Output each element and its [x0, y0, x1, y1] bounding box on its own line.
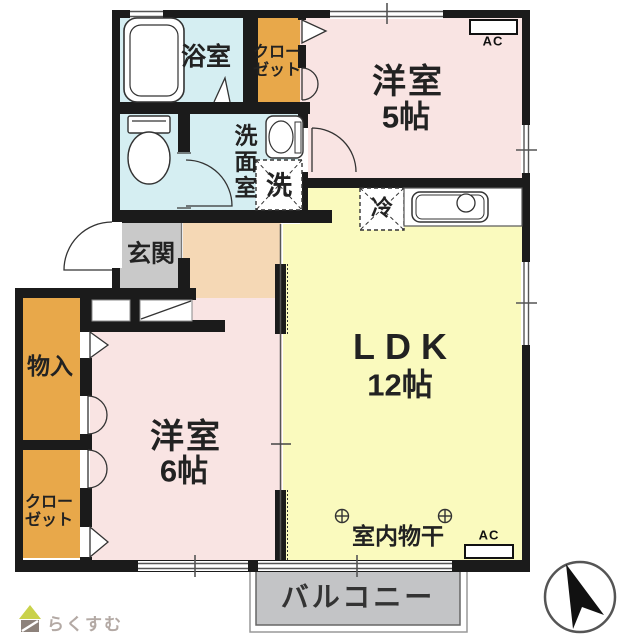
closet-bottom-label: クローゼット: [20, 494, 78, 530]
bathtub-icon: [124, 18, 184, 102]
entrance-door-arc: [64, 222, 112, 270]
room6-size: 6帖: [160, 455, 208, 490]
room6-name: 洋室: [150, 418, 222, 456]
ac-bottom-label: AC: [479, 529, 500, 544]
washer-label: 洗: [266, 171, 292, 200]
storage-label: 物入: [27, 354, 73, 380]
compass-north-icon: [545, 562, 615, 632]
kitchen-sink-icon: [412, 192, 488, 222]
ldk-size: 12帖: [367, 369, 432, 404]
floor-plan-page: 浴室 クローゼット 洋室 5帖 洗面室 洗 玄関 物入 クローゼット 洋室 6帖…: [0, 0, 640, 640]
entrance-label: 玄関: [127, 242, 175, 269]
toilet-icon: [128, 116, 170, 184]
closet-top-label: クローゼット: [248, 44, 306, 80]
logo-text: らくすむ: [47, 610, 123, 635]
indoor-drying-label: 室内物干: [352, 524, 444, 550]
room5-size: 5帖: [382, 101, 430, 136]
washbasin-icon: [266, 116, 303, 158]
fridge-label: 冷: [371, 197, 393, 222]
kitchen-counter: [404, 188, 522, 226]
room5-name: 洋室: [372, 63, 444, 101]
bath-label: 浴室: [181, 43, 231, 71]
ac-top-label: AC: [483, 35, 504, 50]
house-logo-icon: [19, 605, 41, 632]
ldk-name: LDK: [343, 327, 457, 367]
floor-plan-drawing: [0, 0, 640, 640]
washroom-label: 洗面室: [233, 123, 259, 200]
balcony-label: バルコニー: [281, 581, 435, 612]
